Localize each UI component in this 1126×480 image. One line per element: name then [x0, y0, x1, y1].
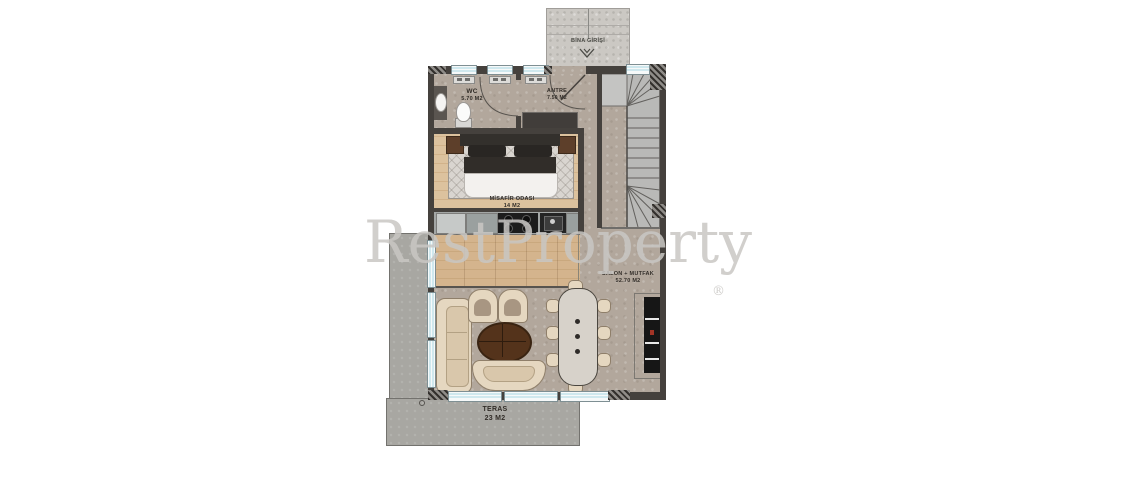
guest-room-name: MİSAFİR ODASI [452, 196, 572, 203]
tv-unit [644, 297, 660, 373]
guest-room-size: 14 M2 [452, 203, 572, 210]
sofa-cushion-seam [446, 332, 467, 333]
window-stairwell [626, 64, 650, 75]
wc-size: 5.70 M2 [450, 96, 494, 103]
kitchen-floor-edge [434, 286, 580, 288]
armchair-seat [474, 299, 491, 316]
burner-icon [504, 215, 513, 224]
wall-hatch-corner [650, 64, 666, 90]
wall-antre-stairs [597, 70, 602, 228]
window-top-2 [487, 65, 513, 75]
guest-room-label: MİSAFİR ODASI 14 M2 [452, 196, 572, 210]
fridge [436, 213, 466, 234]
wc-name: WC [450, 88, 494, 96]
terrace-label: TERAS 23 M2 [455, 405, 535, 423]
toilet-bowl [456, 102, 471, 122]
loveseat [472, 360, 546, 391]
wc-label: WC 5.70 M2 [450, 88, 494, 104]
tv-unit-shelf [645, 342, 659, 344]
tv-unit-shelf [645, 318, 659, 320]
sofa-cushion-seam [446, 359, 467, 360]
nightstand-right [558, 136, 576, 154]
table-decor-dot [575, 334, 580, 339]
coffee-table [477, 322, 532, 363]
antre-name: ANTRE [535, 88, 579, 95]
dining-chair [597, 299, 611, 313]
wc-sink [435, 93, 447, 112]
window-bottom-3 [560, 391, 610, 402]
salon-label: SALON + MUTFAK 52.70 M2 [590, 271, 666, 285]
kitchen-floor [434, 234, 580, 288]
tv-unit-accent [650, 330, 654, 335]
tv-unit-shelf [645, 358, 659, 360]
kitchen-cabinet [466, 213, 498, 234]
radiator-icon [453, 76, 475, 84]
burner-icon [504, 224, 513, 233]
watermark-registered-icon: ® [712, 284, 725, 299]
window-left-3 [427, 340, 436, 388]
floor-plan-canvas: RestProperty ® TERAS 23 M2 BİNA GİRİŞİ W… [0, 0, 1126, 480]
wall-hatch-block [608, 390, 630, 400]
wall-hatch-corner [428, 66, 446, 74]
salon-name: SALON + MUTFAK [590, 271, 666, 278]
dining-chair [597, 353, 611, 367]
salon-size: 52.70 M2 [590, 278, 666, 285]
window-top-1 [451, 65, 477, 75]
terrace-size: 23 M2 [455, 414, 535, 423]
burner-icon [522, 215, 531, 224]
sofa-seat [446, 306, 469, 387]
window-left-1 [427, 240, 436, 288]
wall-right [660, 66, 666, 400]
dining-table [558, 288, 598, 386]
terrace-side-strip [389, 233, 430, 401]
stairs-bottom-edge [601, 227, 660, 229]
armchair-left [468, 289, 498, 323]
antre-label: ANTRE 7.50 M2 [535, 88, 579, 102]
faucet-icon [550, 219, 555, 224]
kitchen-sink [540, 213, 566, 233]
terrace-drain-icon [419, 400, 425, 406]
stove [498, 213, 538, 233]
window-left-2 [427, 292, 436, 338]
window-bottom-2 [504, 391, 558, 402]
burner-icon [522, 224, 531, 233]
entrance-leader-line [588, 9, 589, 39]
dining-chair [597, 326, 611, 340]
terrace-name: TERAS [455, 405, 535, 414]
bed-pillow-left [468, 145, 506, 157]
wall-hatch-corner [428, 390, 448, 400]
radiator-icon [525, 76, 547, 84]
wall-guest-room-top [428, 128, 584, 134]
entrance-label: BİNA GİRİŞİ [550, 38, 626, 45]
wall-guest-room-right [578, 128, 584, 234]
table-decor-dot [575, 319, 580, 324]
antre-size: 7.50 M2 [535, 95, 579, 102]
entrance-direction-icon [579, 48, 595, 60]
bed-pillow-right [514, 145, 552, 157]
bed-duvet [464, 173, 558, 198]
bed-blanket [464, 157, 556, 173]
armchair-seat [504, 299, 521, 316]
wall-hatch-block [652, 204, 666, 218]
coffee-table-seam [502, 324, 503, 357]
sofa [436, 298, 472, 394]
armchair-right [498, 289, 528, 323]
loveseat-seat [483, 366, 535, 382]
window-bottom-1 [448, 391, 502, 402]
table-decor-dot [575, 349, 580, 354]
